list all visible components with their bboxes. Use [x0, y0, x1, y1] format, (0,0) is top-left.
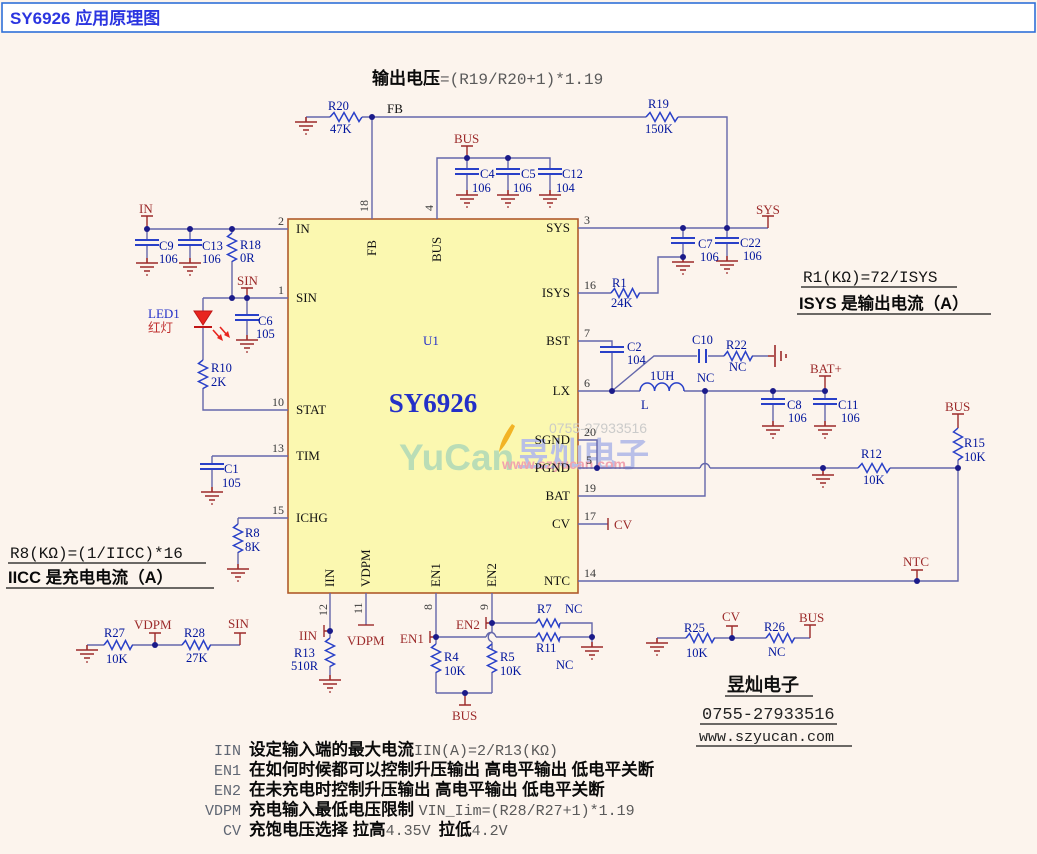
val-R5: 10K: [500, 664, 522, 678]
net-label-bus: BUS: [454, 131, 479, 146]
val-C4: 106: [472, 181, 491, 195]
val-R18: 0R: [240, 251, 255, 265]
ic-pin-number: 15: [272, 503, 284, 517]
val-R8: 8K: [245, 540, 260, 554]
isys-description: ISYS 是输出电流（A）: [799, 293, 969, 313]
ref-R5: R5: [500, 650, 515, 664]
ref-C4: C4: [480, 167, 495, 181]
note-tag: VDPM: [205, 803, 241, 820]
net-label-in: IN: [139, 201, 153, 216]
ic-pin-name: BUS: [429, 237, 444, 262]
net-label-fb: FB: [387, 101, 403, 116]
ic-pin-name: CV: [552, 516, 571, 531]
ic-part-number: SY6926: [389, 388, 478, 418]
ic-pin-name: FB: [364, 240, 379, 256]
ic-pin-name: VDPM: [358, 549, 373, 587]
output-voltage-label: 输出电压: [372, 68, 440, 88]
val-C6: 105: [256, 327, 275, 341]
ic-pin-name: STAT: [296, 402, 326, 417]
net-label-en1: EN1: [400, 631, 424, 646]
val-C10: NC: [697, 371, 714, 385]
net-label-iin: IIN: [299, 628, 318, 643]
ref-R4: R4: [444, 650, 459, 664]
schematic-page: SY6926 应用原理图 YuCan 昱灿电子 0755-27933516 ww…: [0, 0, 1037, 854]
val-LED1: 红灯: [148, 320, 173, 335]
ref-C5: C5: [521, 167, 536, 181]
ic-pin-number: 4: [422, 205, 436, 211]
ref-R13: R13: [294, 646, 315, 660]
val-R15: 10K: [964, 450, 986, 464]
net-label-bus: BUS: [452, 708, 477, 723]
ic-pin-number: 8: [421, 604, 435, 610]
ic-pin-number: 9: [477, 604, 491, 610]
note-formula: 4.2V: [472, 823, 508, 840]
ic-pin-name: ICHG: [296, 510, 328, 525]
note-line: 充电输入最低电压限制 VIN_Iim=(R28/R27+1)*1.19: [249, 799, 635, 820]
note-tag: EN1: [214, 763, 241, 780]
ic-pin-number: 18: [357, 200, 371, 212]
val-R12: 10K: [863, 473, 885, 487]
title-bar: SY6926 应用原理图: [2, 3, 1035, 32]
ic-pin-name: BST: [546, 333, 570, 348]
ref-L: L: [641, 398, 649, 412]
ic-pin-name: NTC: [544, 573, 570, 588]
val-R20: 47K: [330, 122, 352, 136]
output-voltage-expr: =(R19/R20+1)*1.19: [440, 71, 603, 89]
net-label-en2: EN2: [456, 617, 480, 632]
note-text: 设定输入端的最大电流: [249, 739, 415, 759]
net-label-sin: SIN: [237, 273, 259, 288]
ref-C9: C9: [159, 239, 174, 253]
ic-pin-name: SGND: [535, 432, 570, 447]
ref-R18: R18: [240, 238, 261, 252]
val-R28: 27K: [186, 651, 208, 665]
ic-pin-name: IIN: [322, 568, 337, 587]
val-C8: 106: [788, 411, 807, 425]
ref-LED1: LED1: [148, 306, 180, 321]
r1-formula: R1(KΩ)=72/ISYS: [803, 269, 937, 287]
ref-R1: R1: [612, 276, 627, 290]
net-label-vdpm: VDPM: [347, 633, 385, 648]
val-C2: 104: [627, 353, 647, 367]
val-C9: 106: [159, 252, 178, 266]
val-R25: 10K: [686, 646, 708, 660]
ic-pin-number: 19: [584, 481, 596, 495]
ref-R20: R20: [328, 99, 349, 113]
ic-pin-name: EN2: [484, 563, 499, 587]
r8-formula: R8(KΩ)=(1/IICC)*16: [10, 545, 183, 563]
ic-pin-number: 3: [584, 213, 590, 227]
ref-C22: C22: [740, 236, 761, 250]
note-text: 在如何时候都可以控制升压输出 高电平输出 低电平关断: [249, 759, 655, 779]
ref-C6: C6: [258, 314, 273, 328]
ic-pin-number: 11: [351, 602, 365, 614]
ic-pin-name: EN1: [428, 563, 443, 587]
ref-R26: R26: [764, 620, 785, 634]
ic-pin-number: 20: [584, 425, 596, 439]
vendor-name: 昱灿电子: [727, 674, 799, 695]
ic-pin-number: 6: [584, 376, 590, 390]
note-formula: 4.35V: [386, 823, 431, 840]
note-formula: VIN_Iim=(R28/R27+1)*1.19: [419, 803, 635, 820]
ref-R28: R28: [184, 626, 205, 640]
note-text: 充电输入最低电压限制: [249, 799, 419, 819]
note-text: 充饱电压选择 拉高: [249, 819, 386, 839]
ic-pin-name: IN: [296, 221, 310, 236]
val-R26: NC: [768, 645, 785, 659]
ic-pin-number: 5: [586, 453, 592, 467]
ic-pin-number: 1: [278, 283, 284, 297]
ref-C11: C11: [838, 398, 858, 412]
net-label-cv: CV: [722, 609, 741, 624]
ic-pin-name: PGND: [535, 460, 570, 475]
net-label-batp: BAT+: [810, 361, 842, 376]
ref-R27: R27: [104, 626, 125, 640]
ref-C10: C10: [692, 333, 713, 347]
net-label-sin: SIN: [228, 616, 250, 631]
note-line: 设定输入端的最大电流IIN(A)=2/R13(KΩ): [249, 739, 558, 760]
ref-R12: R12: [861, 447, 882, 461]
val-C1: 105: [222, 476, 241, 490]
note-text: 拉低: [439, 819, 473, 839]
ic-refdes: U1: [423, 333, 439, 348]
ic-pin-name: LX: [553, 383, 571, 398]
ic-pin-number: 13: [272, 441, 284, 455]
note-line: 在如何时候都可以控制升压输出 高电平输出 低电平关断: [249, 759, 655, 779]
net-label-bus: BUS: [799, 610, 824, 625]
net-label-bus: BUS: [945, 399, 970, 414]
ref-C12: C12: [562, 167, 583, 181]
iicc-description: IICC 是充电电流（A）: [8, 567, 173, 587]
val-R27: 10K: [106, 652, 128, 666]
ref-R8: R8: [245, 526, 260, 540]
page-title: SY6926 应用原理图: [10, 8, 160, 28]
val-C12: 104: [556, 181, 576, 195]
ref-R7: R7: [537, 602, 552, 616]
ref-C1: C1: [224, 462, 239, 476]
note-tag: EN2: [214, 783, 241, 800]
ref-R15: R15: [964, 436, 985, 450]
output-voltage-formula: 输出电压=(R19/R20+1)*1.19: [372, 68, 603, 89]
val-R19: 150K: [645, 122, 673, 136]
ic-pin-number: 2: [278, 214, 284, 228]
note-line: 充饱电压选择 拉高4.35V拉低4.2V: [249, 819, 508, 840]
ref-C13: C13: [202, 239, 223, 253]
ref-R19: R19: [648, 97, 669, 111]
val-R13: 510R: [291, 659, 319, 673]
net-label-ntc: NTC: [903, 554, 929, 569]
ic-pin-name: TIM: [296, 448, 320, 463]
val-C22: 106: [743, 249, 762, 263]
val-R22: NC: [729, 360, 746, 374]
val-R11: NC: [556, 658, 573, 672]
vendor-phone: 0755-27933516: [702, 706, 835, 725]
val-R4: 10K: [444, 664, 466, 678]
note-text: 在未充电时控制升压输出 高电平输出 低电平关断: [249, 779, 605, 799]
ref-R10: R10: [211, 361, 232, 375]
ic-pin-number: 17: [584, 509, 596, 523]
val-C13: 106: [202, 252, 221, 266]
ref-R11: R11: [536, 641, 556, 655]
ic-pin-name: BAT: [545, 488, 570, 503]
net-label-vdpm: VDPM: [134, 617, 172, 632]
ic-pin-number: 16: [584, 278, 596, 292]
ic-pin-number: 10: [272, 395, 284, 409]
net-label-sys: SYS: [756, 202, 780, 217]
note-formula: IIN(A)=2/R13(KΩ): [414, 743, 558, 760]
ic-pin-name: ISYS: [542, 285, 570, 300]
ic-pin-number: 7: [584, 326, 590, 340]
ic-pin-number: 14: [584, 566, 596, 580]
val-C7: 106: [700, 250, 719, 264]
val-C11: 106: [841, 411, 860, 425]
ref-C2: C2: [627, 340, 642, 354]
val-R7: NC: [565, 602, 582, 616]
ref-C8: C8: [787, 398, 802, 412]
val-R10: 2K: [211, 375, 226, 389]
vendor-website: www.szyucan.com: [699, 729, 834, 746]
watermark-logo: YuCan: [399, 437, 514, 478]
val-L: 1UH: [650, 369, 674, 383]
net-label-cv: CV: [614, 517, 633, 532]
val-C5: 106: [513, 181, 532, 195]
ref-R25: R25: [684, 621, 705, 635]
ic-pin-name: SIN: [296, 290, 318, 305]
ic-pin-name: SYS: [546, 220, 570, 235]
ref-C7: C7: [698, 237, 713, 251]
ic-pin-number: 12: [316, 604, 330, 616]
ref-R22: R22: [726, 338, 747, 352]
val-R1: 24K: [611, 296, 633, 310]
note-tag: IIN: [214, 743, 241, 760]
note-tag: CV: [223, 823, 241, 840]
note-line: 在未充电时控制升压输出 高电平输出 低电平关断: [249, 779, 605, 799]
